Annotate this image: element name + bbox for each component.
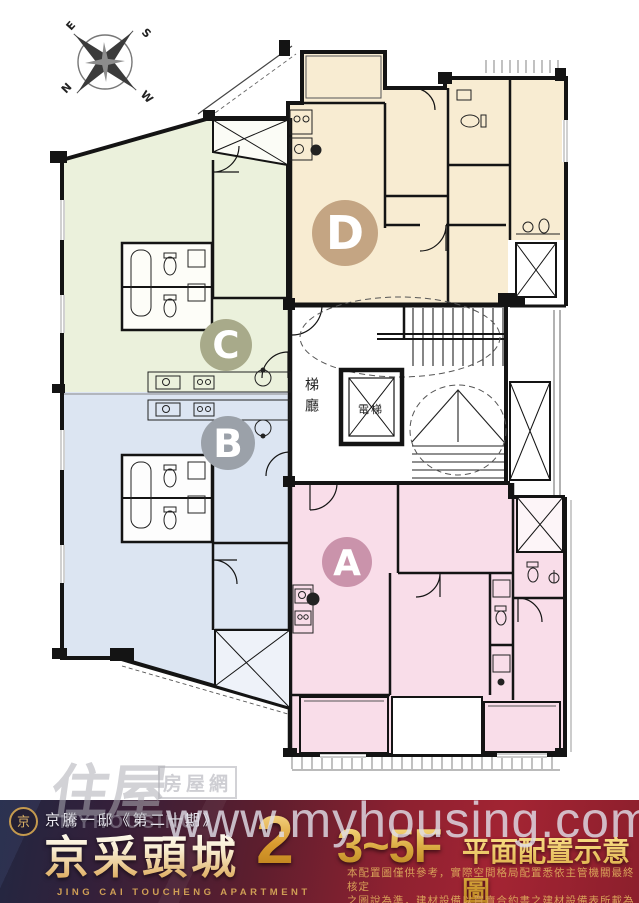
compass-s: S: [139, 26, 154, 41]
project-title-english: JING CAI TOUCHENG APARTMENT: [57, 887, 311, 898]
badge-c: C: [200, 319, 252, 371]
compass-e: E: [64, 19, 79, 33]
compass-rose: E S N W: [46, 3, 165, 122]
elevator-label: 電梯: [358, 403, 384, 416]
page: D C B A 梯廳 電梯: [0, 0, 639, 903]
disclaimer-line-1: 本配置圖僅供參考，實際空間格局配置悉依主管機關最終核定: [347, 866, 639, 894]
stair-hall-label: 梯廳: [303, 377, 319, 419]
disclaimer: 本配置圖僅供參考，實際空間格局配置悉依主管機關最終核定 之圖說為準，建材設備以買…: [347, 866, 639, 903]
brand-logo: 京: [9, 807, 38, 836]
badge-d-letter: D: [326, 206, 364, 260]
compass-w: W: [138, 88, 156, 106]
badge-d: D: [312, 200, 378, 266]
disclaimer-line-2: 之圖說為準，建材設備以買賣合約書之建材設備表所載為準。: [347, 894, 639, 903]
badge-b: B: [201, 416, 255, 470]
badge-a-letter: A: [333, 543, 361, 584]
badge-a: A: [322, 537, 372, 587]
compass-n: N: [59, 80, 75, 96]
floorplan: D C B A 梯廳 電梯: [0, 0, 639, 800]
site-url-watermark: www.myhousing.com.tw: [166, 791, 639, 849]
badge-b-letter: B: [213, 422, 243, 467]
brand-logo-char: 京: [17, 814, 30, 829]
badge-c-letter: C: [212, 324, 239, 367]
